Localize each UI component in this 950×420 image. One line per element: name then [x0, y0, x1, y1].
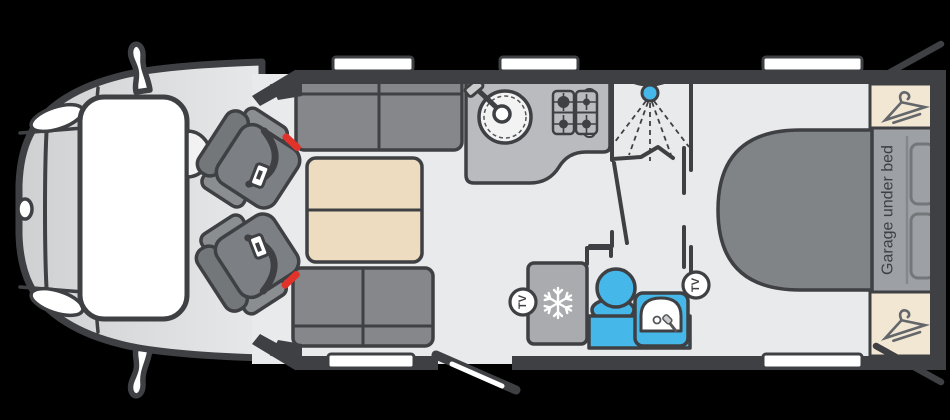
toilet: [597, 269, 635, 307]
wall-rear: [930, 70, 946, 370]
garage-under-bed-label: Garage under bed: [880, 145, 897, 275]
badge: [18, 199, 32, 219]
wing-mirror-icon: [131, 348, 150, 396]
wardrobe-top: [870, 84, 934, 128]
window: [328, 354, 414, 368]
window: [763, 57, 862, 71]
window: [763, 354, 862, 368]
sofa-rear: [293, 268, 433, 346]
tv-rear-label: TV: [690, 277, 702, 292]
shower-head-icon: [642, 85, 658, 101]
basin-drain: [654, 317, 661, 324]
window: [333, 57, 413, 71]
tap-base: [494, 106, 510, 122]
window: [500, 57, 578, 71]
basin: [641, 298, 681, 331]
motorhome-floorplan: Garage under bed: [0, 0, 950, 420]
tv-badge-icon: TV: [510, 289, 536, 315]
tv-badge-icon: TV: [683, 272, 709, 298]
hob: [553, 91, 597, 134]
table: [307, 158, 422, 262]
wall-bottom-right: [512, 356, 932, 370]
tv-front-label: TV: [517, 294, 529, 309]
island-bed: [718, 130, 872, 290]
windscreen: [80, 97, 187, 319]
